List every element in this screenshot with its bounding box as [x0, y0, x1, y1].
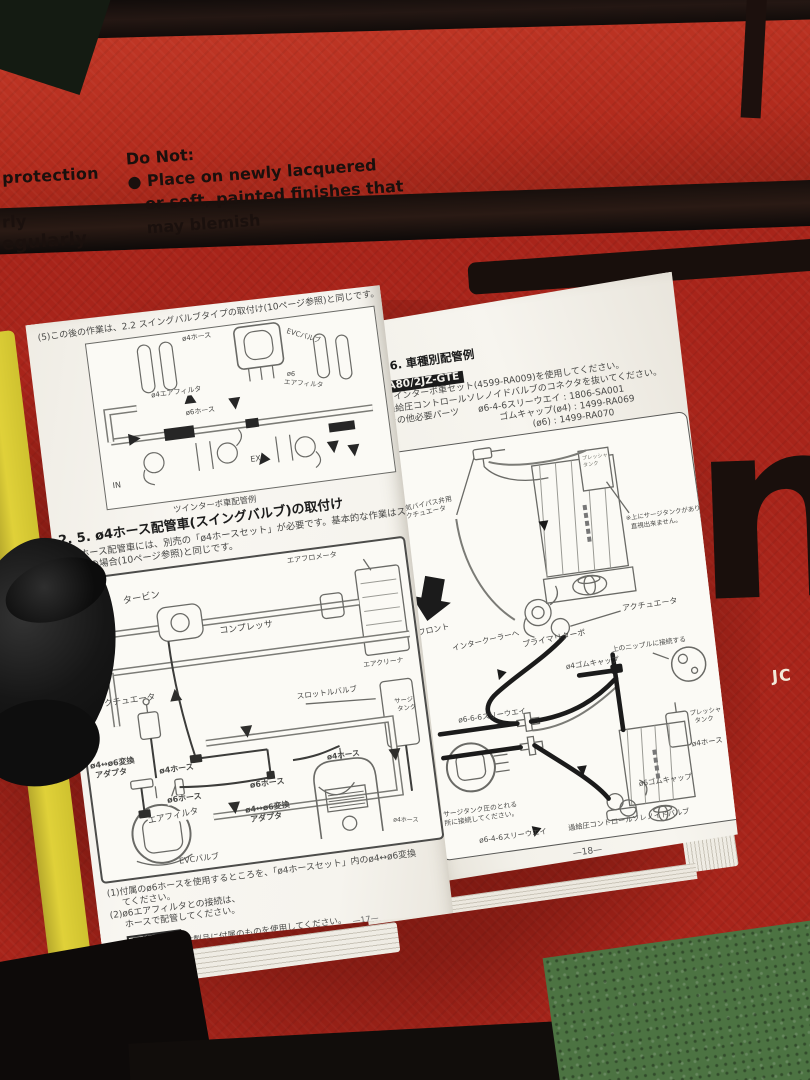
swing-valve-piping-diagram: エアフロメータ タービン コンプレッサ エアクリーナ アクチュエータ スロットル… [62, 536, 445, 885]
twin-turbo-diagram-art [86, 307, 395, 509]
twin-turbo-example-diagram: ø4ホース EVCバルブ ø4エアフィルタ ø6 エアフィルタ ø6ホース IN… [85, 306, 396, 511]
cover-logo-small-text: JC [771, 665, 792, 686]
label-ex: EX [250, 455, 262, 465]
cover-partial-word-rly: rly [2, 211, 28, 231]
label-hose4-c: ø4ホース [393, 817, 418, 824]
cover-do-not-block: Do Not: ● Place on newly lacquered or so… [125, 129, 406, 241]
label-in: IN [112, 481, 121, 491]
swing-valve-diagram-art [64, 538, 442, 882]
photo-of-open-manual-on-fender-cover: protection rly egularly Do Not: ● Place … [0, 0, 810, 1080]
